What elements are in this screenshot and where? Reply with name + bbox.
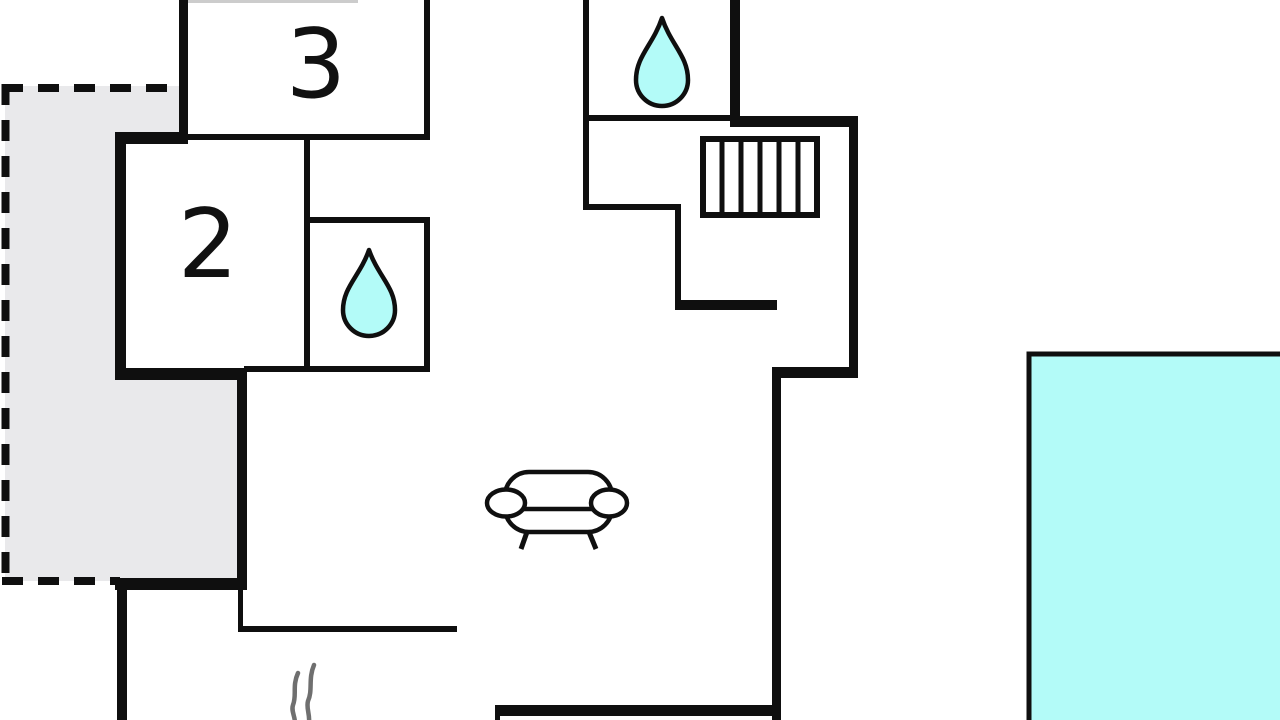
wall-room3-left (179, 0, 188, 139)
wall-west-lower (117, 578, 127, 720)
cutoff-wall-top (188, 0, 358, 3)
wall-west-mid (237, 368, 247, 586)
wall-room3-right (424, 0, 430, 139)
water-drop-icon-upper (636, 18, 688, 106)
staircase-icon (703, 139, 817, 215)
wall-hall-bottom (675, 300, 777, 310)
wall-bath-upper-bottom (583, 115, 732, 121)
floor-plan-canvas: 3 2 (0, 0, 1280, 720)
wall-hall-left-2 (675, 204, 681, 304)
floor-plan: 3 2 (0, 0, 1280, 720)
wall-north-east (730, 116, 858, 127)
wall-hall-left-1 (583, 115, 589, 210)
sofa-leg-left (521, 532, 527, 549)
sofa-armrest-left (487, 490, 525, 517)
wall-bath-lower-top (304, 217, 430, 223)
heat-wave-left (292, 673, 298, 720)
sofa-leg-right (589, 532, 596, 549)
sofa-icon (487, 472, 627, 549)
swimming-pool (1029, 354, 1280, 720)
heat-wave-right (307, 665, 314, 720)
wall-below-terrace (238, 586, 243, 631)
wall-east-step (772, 367, 858, 378)
heat-waves-icon (292, 665, 314, 720)
wall-bath-lower-bottom (244, 366, 430, 372)
wall-bath-upper-right (730, 0, 740, 126)
wall-room2-left (115, 132, 126, 380)
wall-room2-bottom (115, 368, 247, 380)
water-drop-icon-lower (343, 250, 395, 336)
wall-south-tick (495, 712, 500, 720)
wall-terrace-bottom (115, 578, 247, 590)
room-2-label: 2 (178, 190, 238, 300)
wall-room2-divider (304, 136, 310, 372)
wall-bath-upper-left (583, 0, 589, 121)
wall-east-lower (772, 367, 781, 720)
sofa-armrest-right (591, 490, 627, 517)
wall-hall-jog (583, 204, 680, 210)
walls (115, 0, 858, 720)
wall-east-upper (849, 116, 858, 378)
wall-bath-lower-right (424, 217, 430, 372)
wall-south-living (495, 705, 781, 716)
wall-living-divider (238, 626, 457, 632)
room-3-label: 3 (286, 10, 346, 120)
